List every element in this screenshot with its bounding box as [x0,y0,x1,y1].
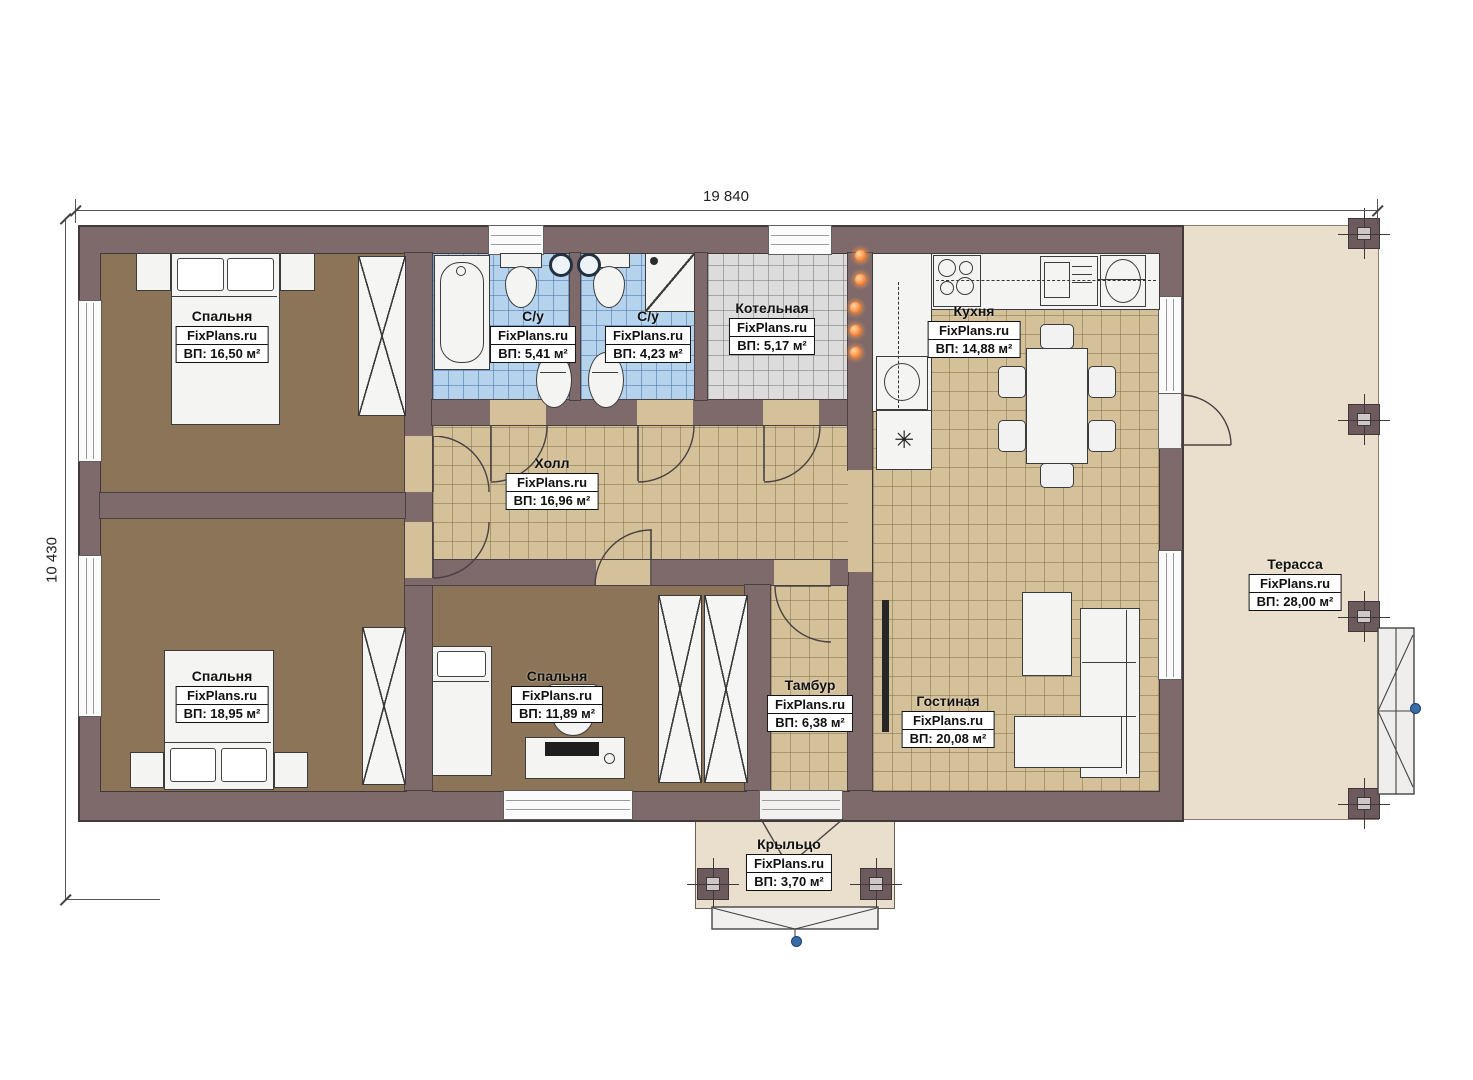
window [78,555,102,717]
room-label-tambour: Тамбур FixPlans.ru ВП: 6,38 м² [767,677,853,732]
dimension-line-top [75,210,1378,211]
burner-icon [940,281,954,295]
column-symbol [697,868,729,900]
door-opening [774,560,830,585]
blanket-line [172,296,277,297]
wardrobe-symbol [704,595,748,783]
watermark: FixPlans.ru [606,327,690,344]
room-area: ВП: 16,96 м² [507,491,598,509]
wall [848,253,872,470]
sink-faucet-line [592,372,618,373]
watermark: FixPlans.ru [929,322,1020,339]
dining-table-symbol [1026,348,1088,464]
terrace-door-opening [1158,393,1182,449]
watermark: FixPlans.ru [730,319,814,336]
room-name: Кухня [954,303,995,319]
column-symbol [1348,218,1380,249]
room-name: Спальня [527,668,587,684]
wall [100,493,405,518]
pillow-symbol [227,258,274,291]
pillow-symbol [177,258,224,291]
wardrobe-symbol [358,256,406,416]
door-opening [490,400,546,425]
room-area: ВП: 14,88 м² [929,339,1020,357]
sink-faucet-line [540,372,566,373]
window [503,790,633,820]
watermark: FixPlans.ru [512,687,602,704]
room-label-boiler: Котельная FixPlans.ru ВП: 5,17 м² [729,300,815,355]
freezer-icon: ✳ [894,426,914,455]
room-area: ВП: 20,08 м² [903,729,994,747]
fridge-symbol: ✳ [876,410,932,470]
column-symbol [860,868,892,900]
coffee-table-symbol [1014,716,1122,768]
tv-symbol [882,600,889,732]
nightstand-symbol [280,253,315,291]
wall [695,253,707,400]
nightstand-symbol [274,752,308,788]
dimension-height-label: 10 430 [44,537,61,583]
pillow-symbol [170,748,216,782]
room-name: С/у [522,308,544,324]
door-arc [1180,394,1234,448]
window [78,300,102,462]
room-area: ВП: 11,89 м² [512,704,602,722]
door-opening [405,436,432,492]
pillow-symbol [221,748,267,782]
bathtub-drain [456,266,466,276]
room-label-kitchen: Кухня FixPlans.ru ВП: 14,88 м² [928,303,1021,358]
room-area: ВП: 18,95 м² [177,704,268,722]
sink-faucet-line [1098,279,1146,280]
door-arc [774,585,832,643]
heating-point-icon [850,302,861,313]
burner-icon [938,259,956,277]
room-name: Тамбур [785,677,836,693]
chair-symbol [1088,366,1116,398]
shower-head-icon [650,257,658,265]
sofa-cushion-line [1082,716,1136,717]
room-name: С/у [637,308,659,324]
room-area: ВП: 16,50 м² [177,344,268,362]
room-area: ВП: 6,38 м² [768,713,852,731]
level-marker-icon [791,936,802,947]
watermark: FixPlans.ru [507,474,598,491]
extension-line [65,899,160,900]
room-name: Гостиная [916,693,979,709]
room-label-living: Гостиная FixPlans.ru ВП: 20,08 м² [902,693,995,748]
room-area: ВП: 5,17 м² [730,336,814,354]
mirror-icon [549,253,573,277]
room-area: ВП: 28,00 м² [1250,592,1341,610]
blanket-line [165,742,271,743]
door-arc [763,425,821,483]
watermark: FixPlans.ru [747,855,831,872]
window [1158,550,1182,680]
door-arc [432,522,490,580]
chair-symbol [998,366,1026,398]
chair-symbol [1040,324,1074,349]
heating-point-icon [855,250,866,261]
door-opening [405,522,432,578]
door-opening [637,400,693,425]
room-label-terrace: Терасса FixPlans.ru ВП: 28,00 м² [1249,556,1342,611]
watermark: FixPlans.ru [177,327,268,344]
watermark: FixPlans.ru [903,712,994,729]
heating-point-icon [850,325,861,336]
pillow-symbol [437,651,486,677]
window [768,225,832,255]
watermark: FixPlans.ru [491,327,575,344]
chair-symbol [1040,463,1074,488]
sofa-cushion-line [1082,662,1136,663]
mouse-symbol [604,753,615,764]
wardrobe-symbol [658,595,702,783]
room-name: Крыльцо [757,836,821,852]
room-label-wc-2: С/у FixPlans.ru ВП: 4,23 м² [605,308,691,363]
column-symbol [1348,404,1380,435]
room-label-porch: Крыльцо FixPlans.ru ВП: 3,70 м² [746,836,832,891]
heating-point-icon [850,347,861,358]
room-area: ВП: 4,23 м² [606,344,690,362]
room-name: Терасса [1267,556,1323,572]
terrace-area [1180,225,1379,820]
burner-icon [959,261,973,275]
armchair-symbol [1022,592,1072,676]
room-label-wc-1: С/у FixPlans.ru ВП: 5,41 м² [490,308,576,363]
room-label-hall: Холл FixPlans.ru ВП: 16,96 м² [506,455,599,510]
washing-machine-drum [884,363,920,401]
level-marker-icon [1410,703,1421,714]
room-label-bedroom-1: Спальня FixPlans.ru ВП: 16,50 м² [176,308,269,363]
chair-symbol [998,420,1026,452]
door-opening [763,400,819,425]
chair-symbol [1088,420,1116,452]
window [1158,296,1182,394]
column-symbol [1348,601,1380,632]
room-name: Холл [534,455,569,471]
room-area: ВП: 3,70 м² [747,872,831,890]
watermark: FixPlans.ru [177,687,268,704]
heating-point-icon [855,274,866,285]
room-area: ВП: 5,41 м² [491,344,575,362]
column-symbol [1348,788,1380,819]
room-name: Спальня [192,668,252,684]
door-arc [637,425,695,483]
open-passage [848,470,872,572]
watermark: FixPlans.ru [768,696,852,713]
door-arc [432,436,490,494]
dimension-line-left [65,218,66,900]
entrance-door-opening [759,790,843,820]
door-arc [594,529,652,587]
vent-line [1072,266,1092,267]
kitchen-sink-bowl [1105,259,1141,303]
room-label-bedroom-3: Спальня FixPlans.ru ВП: 11,89 м² [511,668,603,723]
sofa-back-line [1126,610,1127,774]
blanket-line [433,681,489,682]
wardrobe-symbol [362,627,406,785]
vent-line [1072,274,1092,275]
nightstand-symbol [136,253,171,291]
watermark: FixPlans.ru [1250,575,1341,592]
vent-line [1072,282,1092,283]
mirror-icon [577,253,601,277]
room-name: Котельная [735,300,808,316]
bathtub-inner [440,262,484,363]
dimension-width-label: 19 840 [703,188,749,205]
room-label-bedroom-2: Спальня FixPlans.ru ВП: 18,95 м² [176,668,269,723]
room-name: Спальня [192,308,252,324]
monitor-symbol [545,742,599,756]
floor-plan: ✳ Спальня F [0,0,1473,1080]
counter-edge-dashed [898,282,899,408]
window [488,225,544,255]
nightstand-symbol [130,752,164,788]
